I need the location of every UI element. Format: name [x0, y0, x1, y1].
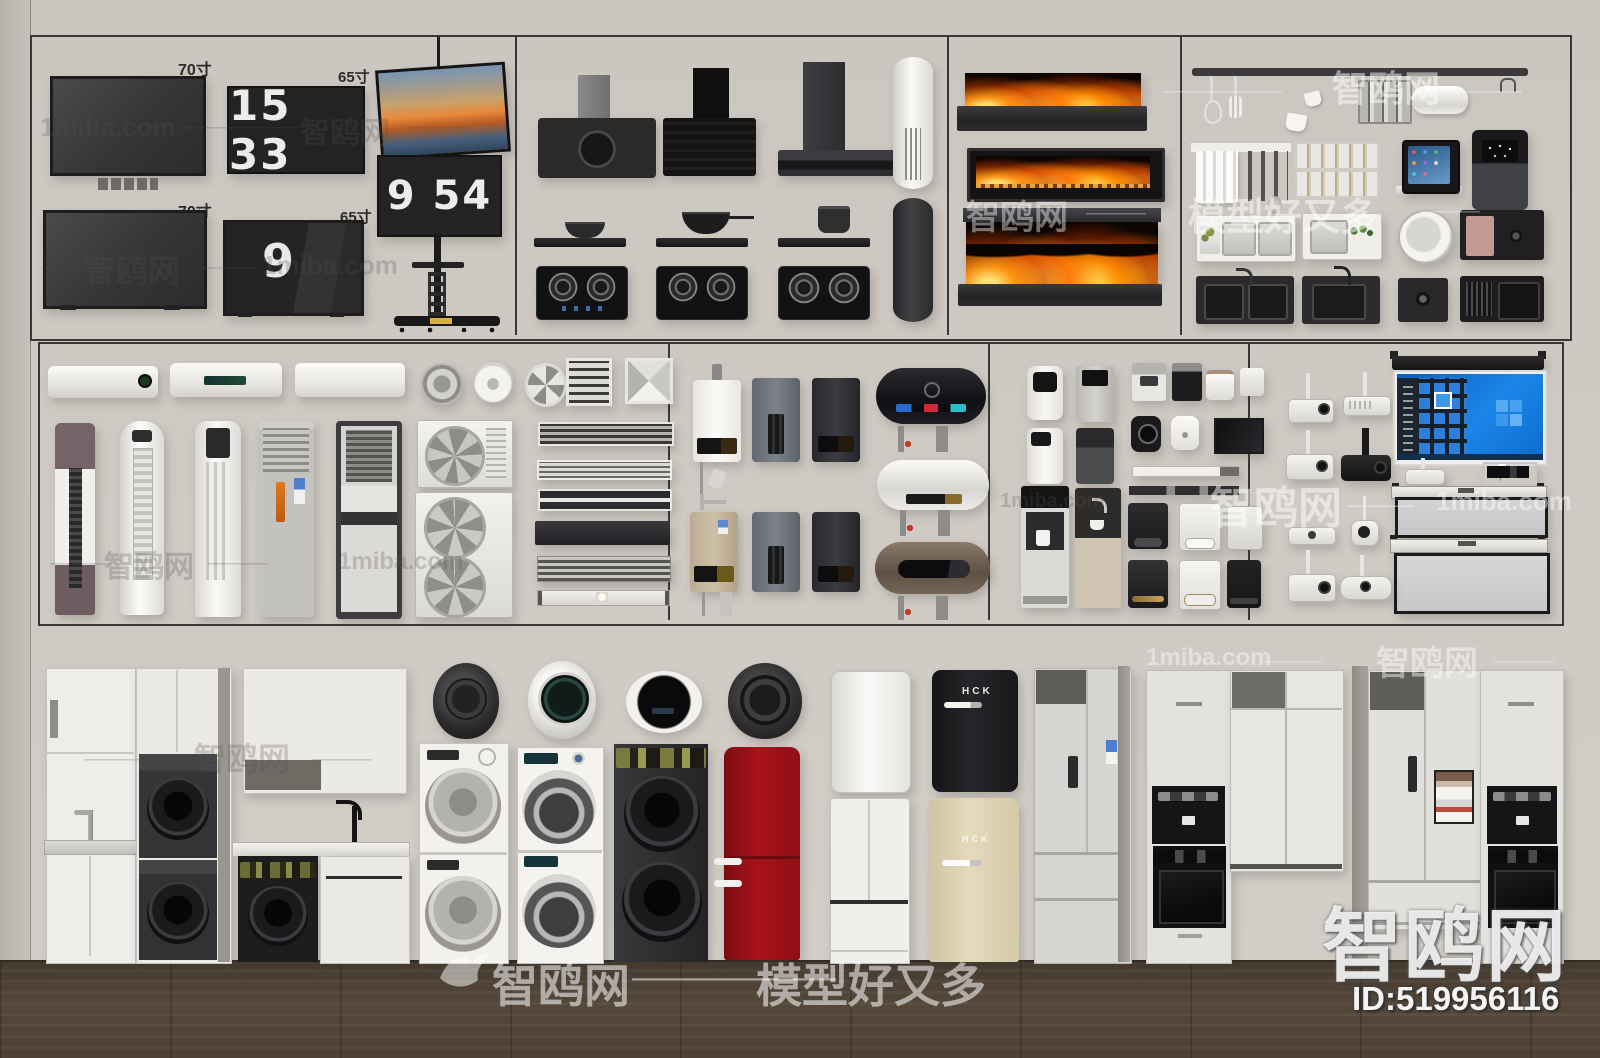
sp1-divider	[419, 852, 507, 855]
ewh-white-display	[906, 494, 962, 504]
purifier-g1-panel	[1082, 370, 1108, 386]
seagull-logo-icon	[436, 944, 492, 992]
lt-side-panel	[218, 668, 230, 962]
purifier-slots	[905, 128, 921, 180]
sink-b2-faucet	[1334, 266, 1351, 285]
tv-cart-label	[430, 318, 452, 324]
teabar2-cup	[1090, 520, 1104, 530]
hanging-tools	[1248, 151, 1288, 201]
dryer-dark-door	[147, 778, 209, 840]
gwh-beige-display	[694, 566, 734, 582]
coffee1-group	[1140, 376, 1158, 386]
black-fridge-handle	[944, 702, 982, 708]
projector1-pole	[1306, 373, 1310, 401]
showroom-scene: 70寸 65寸 15 33 70寸 65寸 9 9 54	[0, 0, 1600, 1058]
linear-diffuser-dark	[535, 521, 670, 545]
sink-bd-basin-1	[1204, 284, 1244, 320]
linear-diffuser-2	[537, 460, 672, 480]
projector2-pole	[1363, 372, 1367, 398]
tv-legs-2	[238, 312, 344, 317]
ewh-black-display	[896, 404, 966, 412]
teabar1-kick	[1023, 596, 1067, 604]
projector4-pole	[1306, 550, 1310, 576]
projector5-pole	[1360, 555, 1364, 577]
ww4-door	[740, 675, 790, 725]
projection-screen-2-surface	[1394, 553, 1550, 614]
wall-pillar-2	[1352, 666, 1368, 962]
bfp-hseam	[1230, 708, 1342, 710]
fridge-retro-cream	[929, 798, 1019, 962]
teabar1-mug	[1036, 530, 1050, 546]
cooktop-shelf-2	[656, 238, 748, 247]
winlogo-pane-3	[1496, 414, 1508, 426]
gwh-gray-slot	[768, 414, 784, 454]
start-menu-highlight-tile	[1434, 392, 1452, 409]
gwh-white-display	[697, 438, 737, 454]
ewh-black-pipes	[898, 426, 948, 452]
top-band-divider-2	[947, 37, 949, 335]
tower-display-band	[616, 748, 706, 768]
ww1-door	[445, 678, 487, 720]
gray-fridge-seam-2	[1034, 898, 1130, 901]
wood-floor	[0, 960, 1600, 1058]
media-box-row	[98, 178, 158, 190]
sp1-display-top	[427, 750, 459, 760]
linear-diffuser-3	[538, 489, 672, 511]
spice-jar-shelf-top	[1295, 142, 1379, 170]
bfp-dark-panel	[1232, 672, 1286, 708]
hood-chimney-2	[693, 68, 729, 122]
spice-jar-shelf-bottom	[1295, 170, 1379, 198]
ac-fg-louvers	[263, 428, 309, 472]
projector2-vents	[1349, 401, 1373, 409]
coffee-machine-black	[1172, 363, 1202, 401]
laundry-counter	[232, 842, 410, 857]
projection-screen-1-surface	[1395, 497, 1548, 538]
fbs-seam-2	[1368, 922, 1480, 925]
bfp-baseline	[1230, 864, 1342, 869]
hob1-burner-right	[586, 272, 616, 302]
ucw-door	[248, 886, 308, 946]
hob3-burner-left	[788, 272, 820, 304]
lc1-sink-top	[44, 840, 138, 855]
hanging-spice-rack	[1358, 80, 1412, 124]
gwh-beige-pipe	[700, 494, 726, 510]
teabar2-header	[1075, 488, 1121, 538]
ac-wall-split-3	[295, 363, 405, 397]
ladle-head	[1268, 196, 1282, 214]
fireplace-insert-flame	[976, 156, 1150, 184]
sp2-drum-bot	[522, 874, 596, 948]
tv-cart-ladder	[428, 272, 446, 316]
dispenser-screen-icons	[1482, 140, 1518, 162]
sink-plant	[1200, 226, 1220, 254]
winlogo-pane-2	[1510, 400, 1522, 412]
paper-towel-roll	[1412, 86, 1468, 114]
ac-fc-band	[341, 512, 397, 525]
gwh-beige-sticker	[718, 520, 728, 534]
gray-fridge-display	[1068, 756, 1078, 788]
ac2-display	[204, 376, 246, 385]
gray-fridge-top-panel	[1036, 670, 1088, 704]
projector1-lens	[1318, 403, 1330, 415]
top-band-divider-3	[1180, 37, 1182, 335]
fireplace-open-flame-top	[965, 73, 1141, 107]
winlogo-pane-4	[1510, 414, 1522, 426]
ewh-brown-pipes	[898, 596, 948, 620]
washer-dark-door	[147, 882, 209, 944]
fbs-dark-panel	[1370, 672, 1426, 710]
sp1-drum-top	[425, 768, 501, 844]
ww3-display	[652, 708, 674, 714]
tv-70-inch-1	[50, 76, 206, 176]
fbs-control-strip	[1408, 756, 1417, 792]
ac-twd-panel	[206, 428, 230, 458]
fridge-mini-white	[831, 671, 911, 793]
fireplace-ember-strip	[976, 184, 1150, 188]
gray-fridge-seam-1	[1034, 852, 1130, 855]
hob1-knobs	[562, 306, 602, 311]
ac1-button	[138, 374, 152, 388]
dock-d1-robot	[1134, 538, 1162, 547]
purifier2-display	[1031, 432, 1051, 446]
sink-wd-basin-2	[1258, 222, 1292, 256]
french-fridge-drawer-seam	[830, 950, 908, 952]
outdoor2-fan-top	[424, 497, 486, 559]
hob2-burner-right	[706, 272, 736, 302]
bo1-door-glass	[1159, 870, 1224, 924]
whisk-utensil	[1210, 76, 1213, 102]
cream-fridge-brand: HCK	[962, 834, 991, 844]
range-hood-angled	[663, 118, 756, 176]
bcm1-steel-strip	[1158, 792, 1218, 801]
ac-cyl-vent	[133, 448, 153, 580]
sp1-display-bot	[427, 860, 459, 870]
ewh-brown-glass	[898, 560, 970, 578]
cooker-white-handle	[1206, 370, 1234, 400]
projector-side-dot	[1308, 531, 1316, 539]
vent-grille-slatted	[566, 358, 612, 406]
lt-cab-seam	[176, 670, 178, 752]
cooktop-shelf-3	[778, 238, 870, 247]
sink-bp-drain	[1510, 230, 1522, 242]
bc1-label-smudge	[1178, 934, 1202, 938]
projector3-pole	[1306, 430, 1310, 456]
wall-screen-black	[1214, 418, 1264, 454]
dock-w3-robot	[1184, 594, 1216, 606]
hood-chimney-3	[803, 62, 845, 152]
start-menu-applist	[1397, 378, 1419, 454]
bread-maker-white	[1240, 368, 1264, 396]
winlogo-pane-1	[1496, 400, 1508, 412]
bc2-brand-smudge	[1508, 702, 1534, 706]
tv-70-inch-2	[43, 210, 207, 309]
hob2-burner-left	[668, 272, 698, 302]
dock-w1-robot	[1185, 538, 1215, 549]
gray-fridge-sticker	[1106, 740, 1117, 764]
air-purifier-dark-cylinder	[893, 198, 933, 322]
ac-fg-sticker	[294, 478, 305, 504]
black-faucet-arc	[336, 800, 362, 820]
sink-b2-basin	[1312, 284, 1366, 320]
watermark-miba-bottomright: 1miba.com	[1146, 644, 1271, 672]
fireplace-mantel-1	[957, 106, 1147, 131]
hob1-burner-left	[548, 272, 578, 302]
spatula-utensil	[1234, 76, 1237, 98]
fireplace-mantel-3	[958, 284, 1162, 306]
bo2-control-band	[1488, 850, 1558, 863]
ac-fc-grille	[346, 430, 392, 482]
ceiling-diffuser-round-2	[473, 361, 513, 403]
smart-rail-white	[1132, 466, 1240, 477]
sp2-knob-top	[572, 752, 585, 765]
outdoor1-fan	[425, 426, 485, 486]
flip-clock-tv-1: 15 33	[227, 86, 365, 174]
teabar1-header	[1021, 486, 1069, 508]
drainer-ribs	[1466, 282, 1492, 316]
cookware-pot-3	[818, 206, 850, 233]
sink-greens	[1348, 224, 1374, 238]
sink-drainer-basin	[1498, 282, 1540, 320]
cam-projector-pole	[1363, 496, 1366, 522]
range-hood-side-draft	[538, 118, 656, 178]
ac-fg-orange-strip	[276, 482, 285, 522]
tv-cart-shelf	[412, 262, 464, 268]
range-hood-t-shape	[778, 150, 896, 176]
kettle-dial	[1138, 424, 1158, 444]
bc1-brand-smudge	[1176, 702, 1202, 706]
black-fridge-brand: HCK	[962, 686, 993, 697]
diffuser-slim-light	[596, 592, 608, 602]
french-fridge-gap	[830, 900, 908, 904]
tv-cart-wheels	[396, 326, 498, 334]
sp2-drum-top	[522, 770, 596, 844]
french-fridge-door-seam	[868, 800, 870, 900]
fbs-door-seam	[1424, 672, 1426, 880]
sp2-display-bot	[524, 856, 558, 867]
red-fridge-handle-bottom	[714, 880, 742, 887]
projector3-lens	[1316, 460, 1328, 472]
projector-black-pole	[1362, 428, 1369, 458]
sink-bs-drain	[1416, 292, 1430, 306]
bo2-door-glass	[1494, 870, 1556, 924]
bcm1-chip	[1182, 816, 1195, 825]
dock-d3-base	[1230, 598, 1258, 604]
lc1-door-seam	[89, 856, 91, 956]
top-band-divider-1	[515, 37, 517, 335]
lwc-dark-trim	[245, 760, 321, 790]
lbc-groove	[326, 876, 402, 879]
sink-wd-basin-1	[1222, 222, 1256, 256]
linear-diffuser-striped	[537, 556, 671, 582]
gwh-dark-display	[818, 436, 854, 452]
sp1-drum-bot	[425, 876, 501, 952]
gray-fridge-door-seam	[1086, 670, 1088, 852]
ac-cyl-display	[132, 430, 152, 442]
sink-ws-basin	[1310, 220, 1348, 254]
outdoor1-grille	[486, 428, 506, 478]
lc1-faucet-spout	[74, 810, 92, 815]
tower-drum-top	[624, 776, 700, 852]
projector5-lens	[1360, 581, 1371, 592]
bo1-control-band	[1153, 850, 1226, 863]
fbs-touchscreen	[1434, 770, 1474, 824]
sp1-knob-top	[478, 748, 496, 766]
wall-washer-ring-white	[626, 671, 702, 733]
linear-diffuser-1	[538, 422, 674, 446]
screen2-label-chip	[1458, 541, 1476, 546]
hob3-burner-right	[828, 272, 860, 304]
sink-bd-basin-2	[1248, 284, 1288, 320]
left-wall-edge	[0, 0, 31, 960]
screen1-label-chip	[1458, 488, 1474, 493]
fridge-retro-red	[724, 747, 800, 960]
sp2-divider	[517, 850, 602, 853]
bcm2-chip	[1516, 816, 1529, 825]
sink-round	[1398, 210, 1454, 264]
sink-bd-faucet	[1236, 268, 1253, 285]
cream-fridge-handle	[942, 860, 982, 866]
ceiling-diffuser-round-3	[525, 363, 567, 407]
hand-towel	[1196, 151, 1238, 203]
fireplace-log-silhouette	[966, 244, 1158, 264]
gwh-beige-shower	[702, 592, 732, 616]
wall-pillar-1	[1118, 666, 1130, 962]
cam-projector-face	[1358, 526, 1370, 538]
hood-chimney-1	[578, 75, 610, 123]
dock-d2-trim	[1132, 596, 1164, 602]
ac-tower-brown-vent	[69, 468, 82, 588]
cooktop-shelf-1	[534, 238, 626, 247]
outdoor2-fan-bottom	[424, 556, 486, 618]
gwh-dark2-display	[818, 566, 854, 582]
projector-black-lens	[1374, 461, 1387, 474]
start-menu-tiles	[1419, 378, 1467, 454]
windows-logo-icon	[1496, 400, 1522, 426]
ewh-black-logo	[924, 382, 940, 398]
lc1-upper-seam	[46, 752, 134, 754]
bfp-vseam	[1285, 672, 1287, 868]
vent-diffuser-pyramid	[625, 358, 673, 404]
projector-bracket-body	[1487, 466, 1529, 478]
doorbell-button	[1182, 432, 1188, 438]
tv-legs-1	[60, 305, 180, 310]
fridge-french-white	[830, 798, 910, 964]
red-fridge-handle-top	[714, 858, 742, 865]
kitchen-hanging-rail	[1192, 68, 1528, 76]
projector4-lens	[1318, 581, 1331, 594]
ww2-door	[538, 672, 592, 726]
tower-drum-bottom	[622, 862, 702, 942]
bcm2-steel-strip	[1493, 792, 1551, 801]
whisk-head	[1204, 100, 1222, 124]
projection-screen-windows-case	[1392, 356, 1544, 370]
laundry-base-cabinet-white	[320, 856, 410, 964]
smart-rail-dark	[1129, 486, 1239, 495]
rail-hook-right	[1500, 78, 1516, 92]
projector-small	[1405, 469, 1445, 485]
water-purifier-dark-2	[1076, 428, 1114, 484]
tv-clock-digit: 9	[262, 234, 294, 288]
wok-handle	[728, 216, 754, 219]
tablet-screen	[1408, 146, 1450, 184]
flip-clock-tv-2: 9 54	[377, 155, 502, 237]
fireplace-3-top-bar	[963, 208, 1161, 222]
ac-twd-slats	[206, 462, 230, 580]
spatula-head	[1229, 96, 1242, 118]
windows-taskbar	[1397, 454, 1543, 460]
purifier1-screen	[1033, 372, 1057, 392]
ucw-display	[240, 862, 316, 878]
ceiling-tv-sunset	[375, 62, 511, 161]
ewh-white-pipes	[900, 510, 950, 536]
gwh-white-shower	[700, 462, 703, 496]
gwh-white-pipe	[712, 364, 722, 380]
vacuum-dock-white-2	[1227, 506, 1263, 550]
sp2-display-top	[524, 753, 558, 764]
gwh-gray2-slot	[768, 546, 784, 584]
fbs-seam-1	[1368, 880, 1480, 883]
ceiling-diffuser-round-1	[421, 363, 463, 405]
pink-cutting-board	[1466, 216, 1494, 256]
lc1-handle	[50, 700, 58, 738]
